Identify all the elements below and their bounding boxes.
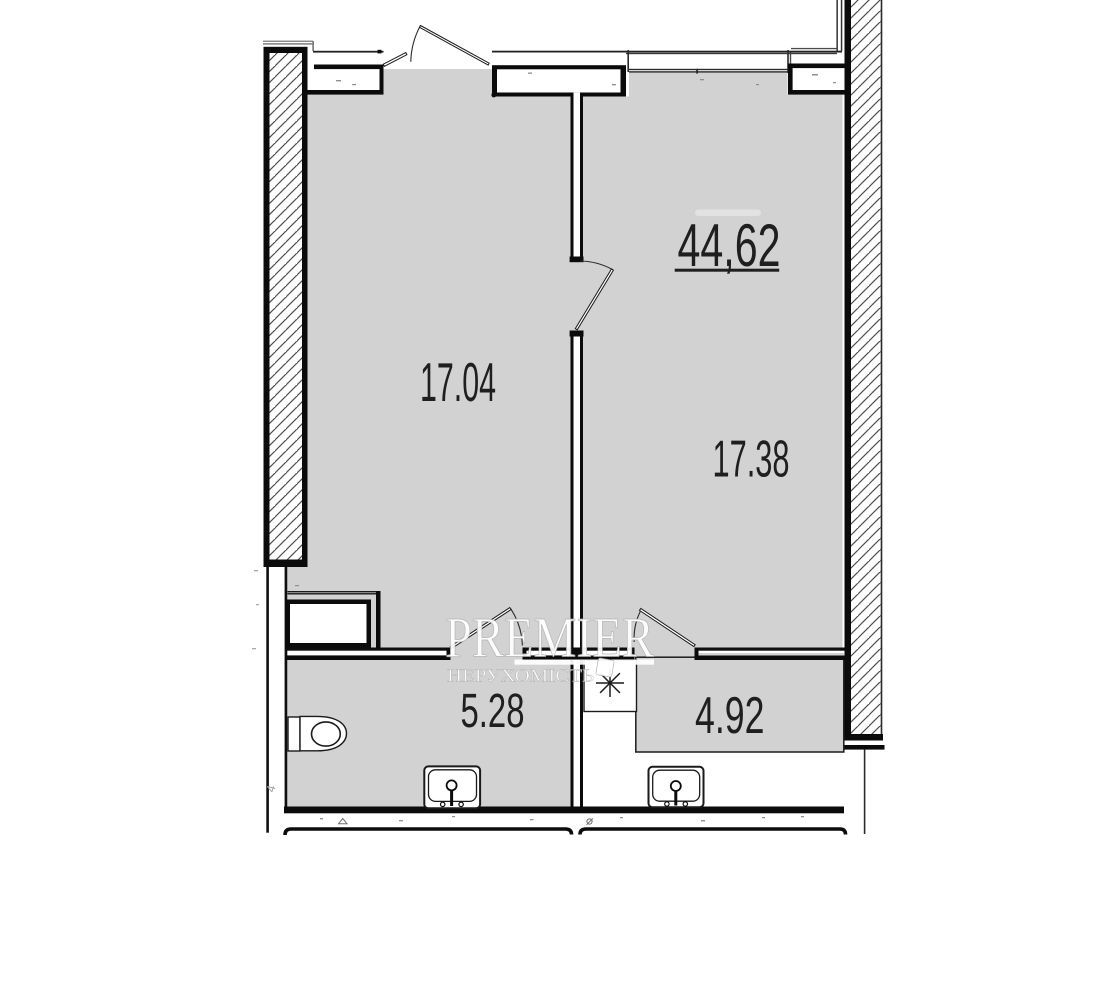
svg-text:5.28: 5.28 [461,684,525,738]
svg-text:17.38: 17.38 [713,430,790,488]
svg-text:4.92: 4.92 [695,686,765,744]
svg-text:НЕРУХОМІСТЬ: НЕРУХОМІСТЬ [447,666,594,686]
svg-text:17.04: 17.04 [420,351,496,413]
